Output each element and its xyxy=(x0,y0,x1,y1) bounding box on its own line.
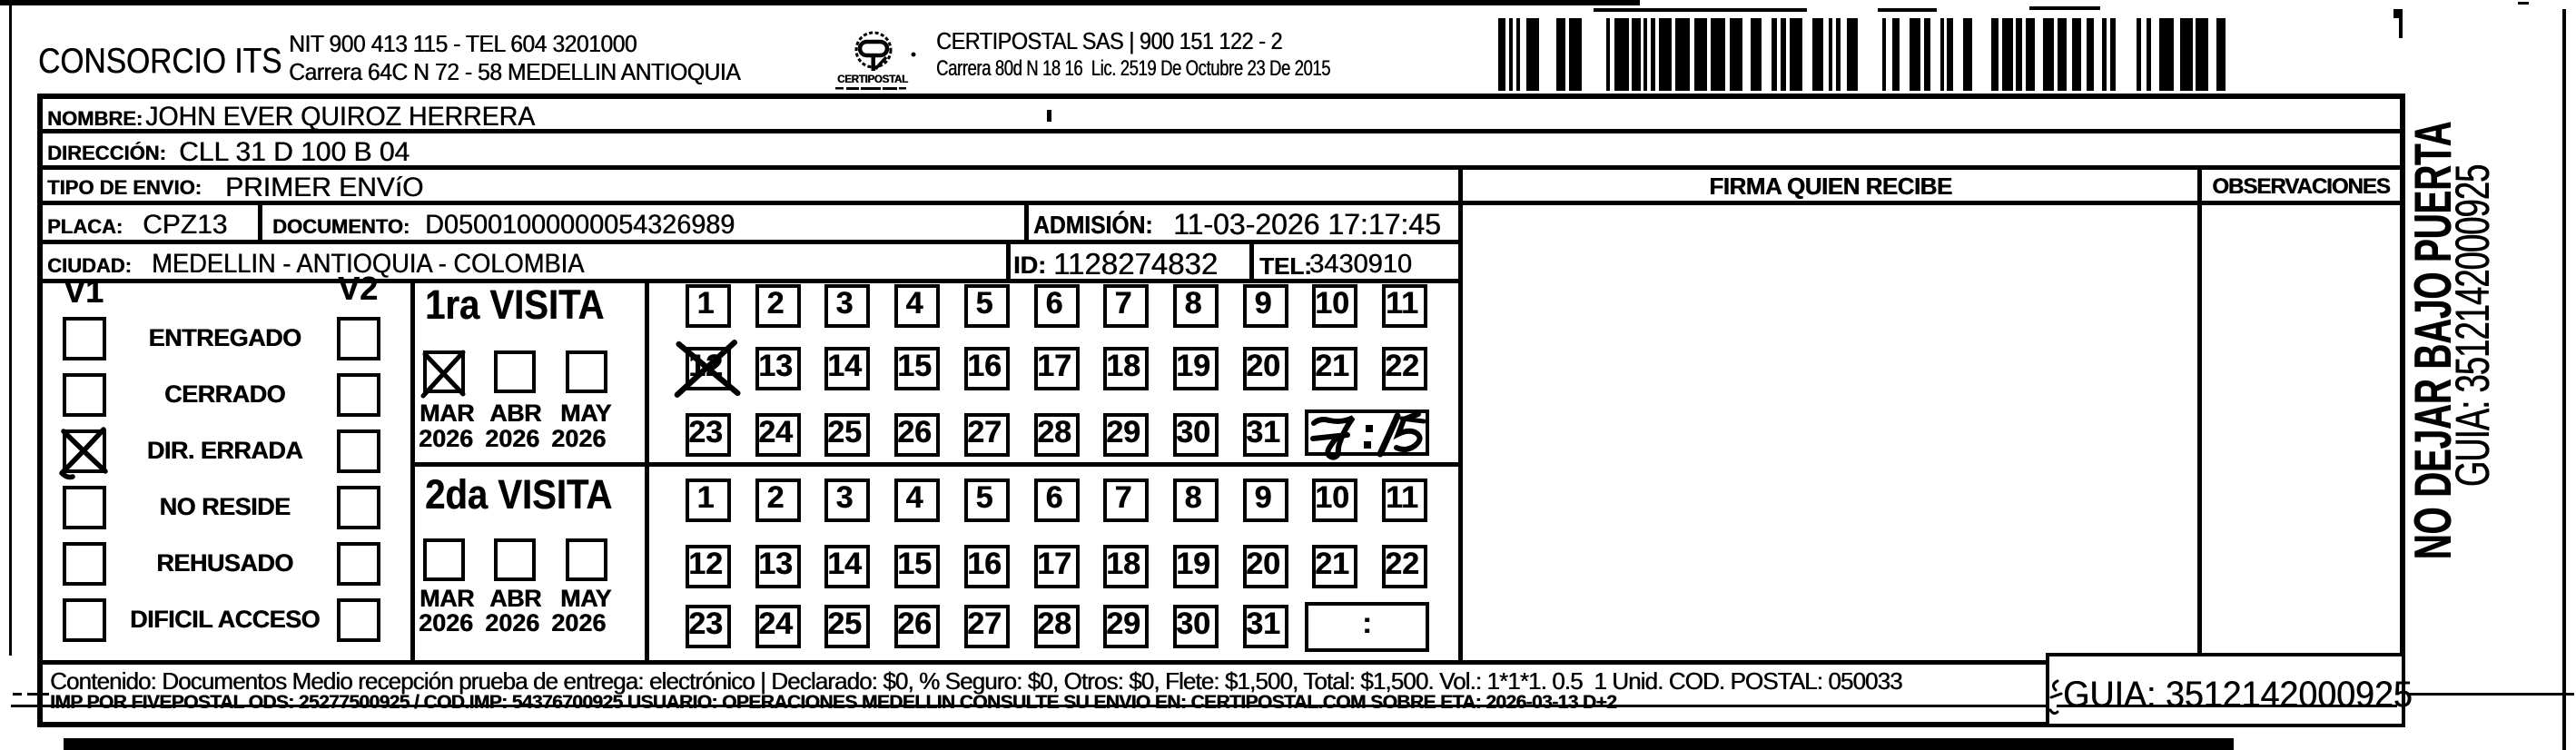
svg-text:CERTIPOSTAL: CERTIPOSTAL xyxy=(837,74,908,85)
